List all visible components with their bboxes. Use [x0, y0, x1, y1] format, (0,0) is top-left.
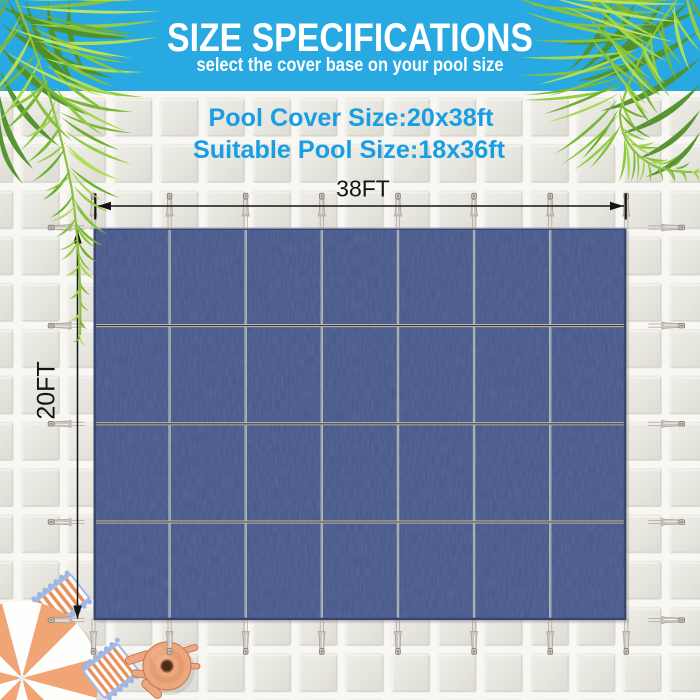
svg-text:Pool Cover Size:20x38ft: Pool Cover Size:20x38ft [209, 104, 495, 132]
svg-text:38FT: 38FT [336, 176, 390, 202]
svg-text:select the cover base on your: select the cover base on your pool size [197, 55, 504, 76]
svg-text:20FT: 20FT [33, 361, 61, 419]
svg-text:SIZE SPECIFICATIONS: SIZE SPECIFICATIONS [167, 16, 533, 60]
svg-text:Suitable Pool Size:18x36ft: Suitable Pool Size:18x36ft [193, 136, 506, 164]
